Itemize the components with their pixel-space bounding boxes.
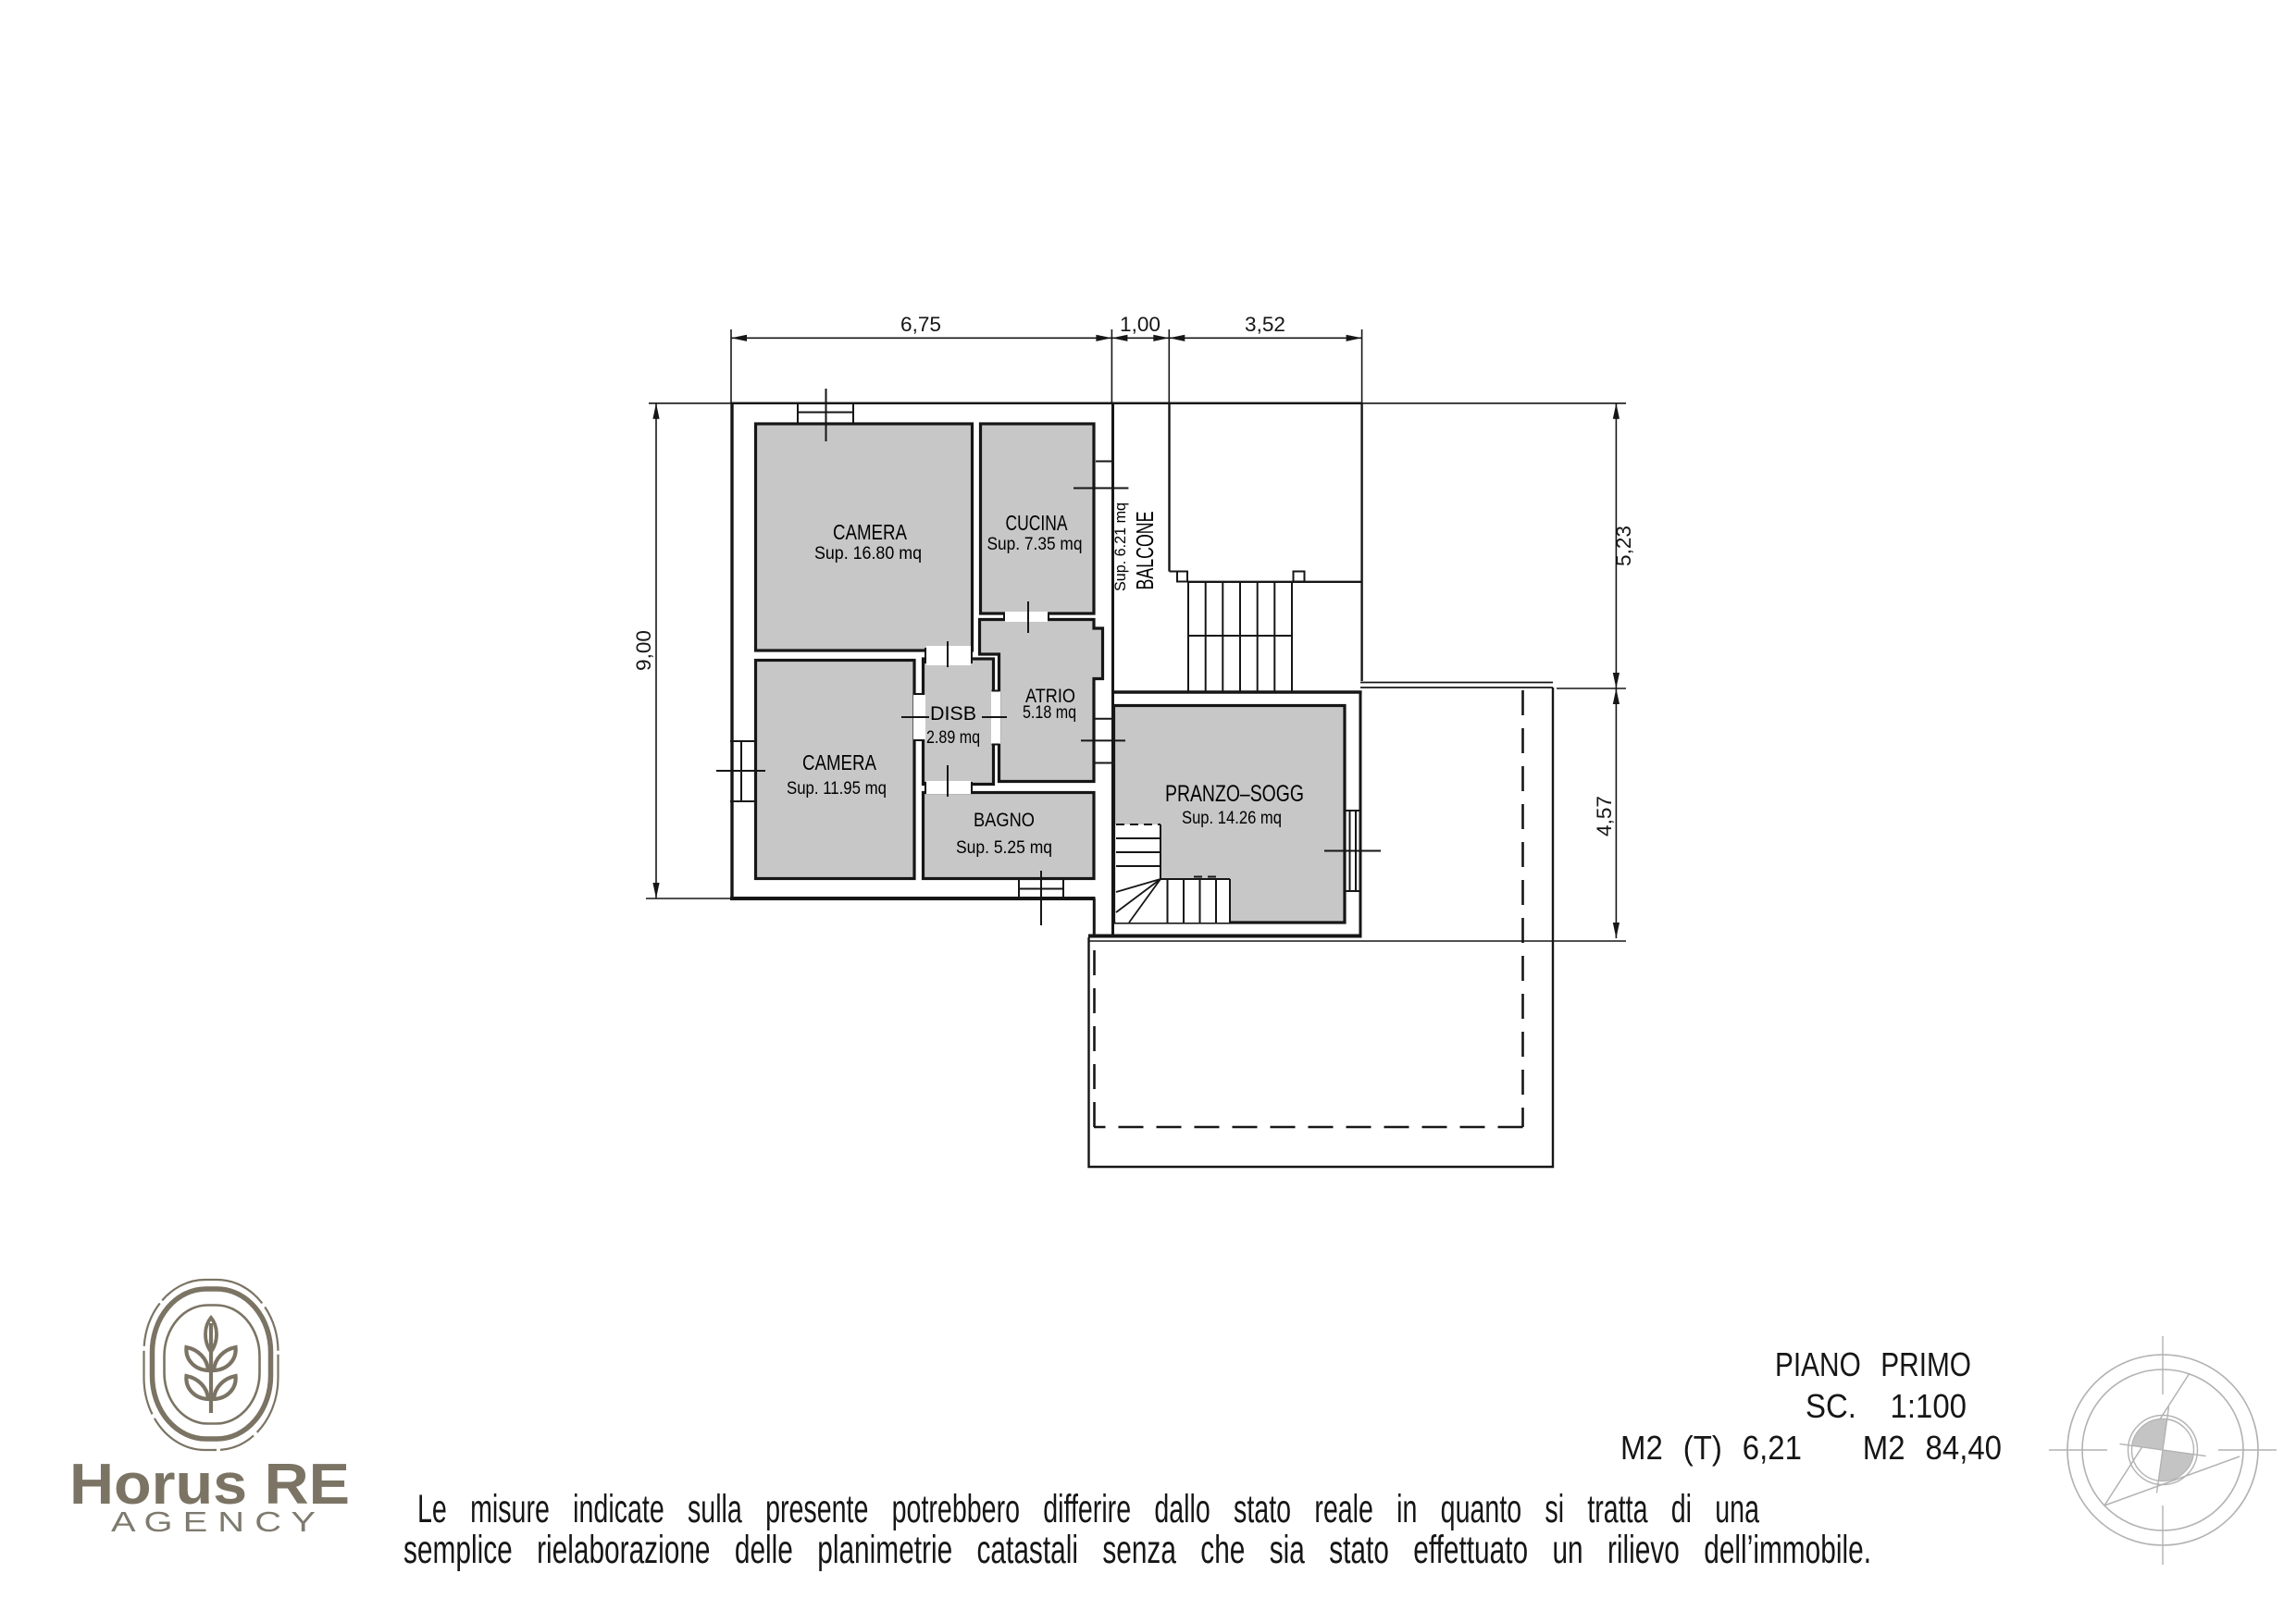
svg-text:CAMERA: CAMERA [833, 520, 908, 544]
svg-text:A G E N C Y: A G E N C Y [111, 1505, 316, 1538]
svg-text:3,52: 3,52 [1245, 313, 1285, 336]
svg-text:CUCINA: CUCINA [1006, 511, 1068, 535]
svg-text:Sup. 6.21 mq: Sup. 6.21 mq [1111, 502, 1129, 591]
svg-text:2.89 mq: 2.89 mq [926, 728, 980, 748]
svg-text:Sup. 14.26 mq: Sup. 14.26 mq [1182, 809, 1282, 828]
svg-text:M2 (T) 6,21 M2 84,40: M2 (T) 6,21 M2 84,40 [1620, 1429, 2002, 1467]
svg-text:Sup. 7.35 mq: Sup. 7.35 mq [987, 535, 1083, 554]
svg-text:6,75: 6,75 [900, 313, 941, 336]
svg-text:BALCONE: BALCONE [1131, 512, 1159, 590]
svg-text:DISB: DISB [930, 703, 976, 725]
svg-text:PRANZO–SOGG: PRANZO–SOGG [1165, 781, 1304, 807]
svg-text:5,23: 5,23 [1612, 526, 1635, 566]
svg-text:9,00: 9,00 [632, 630, 655, 671]
svg-text:1,00: 1,00 [1120, 313, 1160, 336]
svg-text:5.18 mq: 5.18 mq [1023, 703, 1076, 723]
svg-text:4,57: 4,57 [1593, 796, 1616, 836]
svg-text:Sup. 16.80 mq: Sup. 16.80 mq [814, 544, 922, 564]
svg-text:BAGNO: BAGNO [974, 810, 1035, 831]
svg-text:Le misure indicate sulla prese: Le misure indicate sulla presente potreb… [417, 1487, 1759, 1531]
svg-text:semplice rielaborazione delle: semplice rielaborazione delle planimetri… [403, 1528, 1871, 1572]
svg-text:SC. 1:100: SC. 1:100 [1806, 1387, 1967, 1425]
svg-text:Sup. 11.95 mq: Sup. 11.95 mq [787, 779, 887, 799]
svg-text:Sup. 5.25 mq: Sup. 5.25 mq [956, 838, 1052, 858]
svg-text:PIANO PRIMO: PIANO PRIMO [1775, 1345, 1971, 1383]
svg-text:CAMERA: CAMERA [802, 750, 877, 774]
